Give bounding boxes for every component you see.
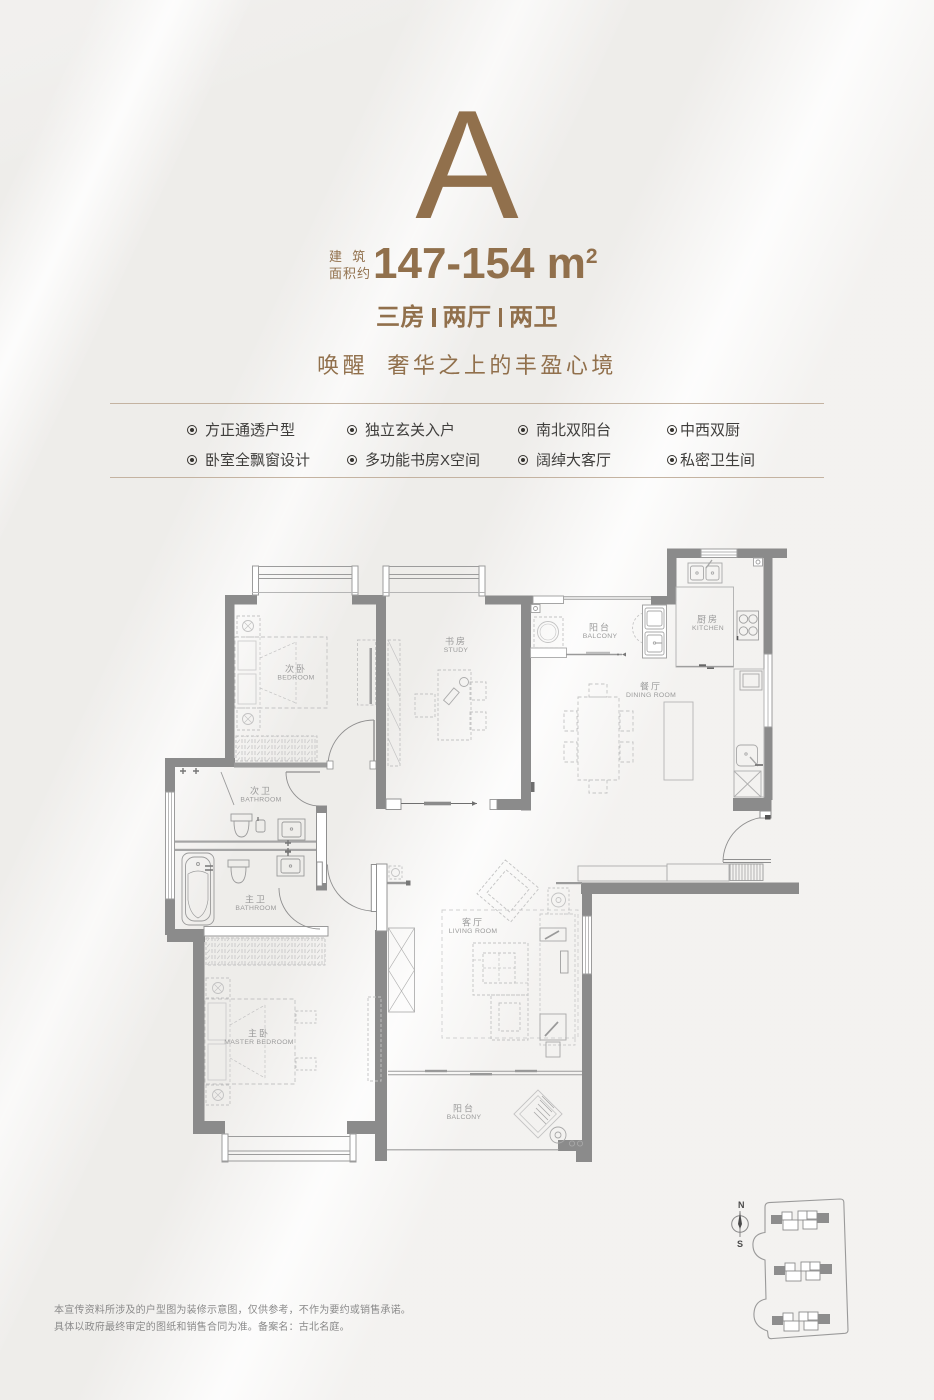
svg-text:主卧: 主卧 (248, 1028, 270, 1039)
svg-text:DINING ROOM: DINING ROOM (626, 692, 676, 699)
svg-text:阳台: 阳台 (589, 622, 611, 633)
svg-text:主卫: 主卫 (245, 894, 267, 905)
svg-text:次卫: 次卫 (250, 785, 272, 796)
svg-text:BALCONY: BALCONY (447, 1114, 482, 1121)
svg-text:客厅: 客厅 (462, 917, 484, 928)
svg-text:STUDY: STUDY (444, 647, 469, 654)
svg-text:餐厅: 餐厅 (640, 681, 662, 692)
svg-text:BATHROOM: BATHROOM (235, 905, 276, 912)
svg-text:厨房: 厨房 (697, 614, 719, 625)
svg-text:BATHROOM: BATHROOM (240, 797, 281, 804)
svg-text:MASTER BEDROOM: MASTER BEDROOM (224, 1039, 294, 1046)
svg-text:书房: 书房 (445, 636, 467, 647)
svg-text:BALCONY: BALCONY (583, 633, 618, 640)
svg-text:KITCHEN: KITCHEN (692, 625, 724, 632)
svg-text:BEDROOM: BEDROOM (277, 675, 314, 682)
svg-text:LIVING ROOM: LIVING ROOM (449, 928, 498, 935)
svg-text:次卧: 次卧 (285, 663, 307, 674)
svg-text:阳台: 阳台 (453, 1103, 475, 1114)
